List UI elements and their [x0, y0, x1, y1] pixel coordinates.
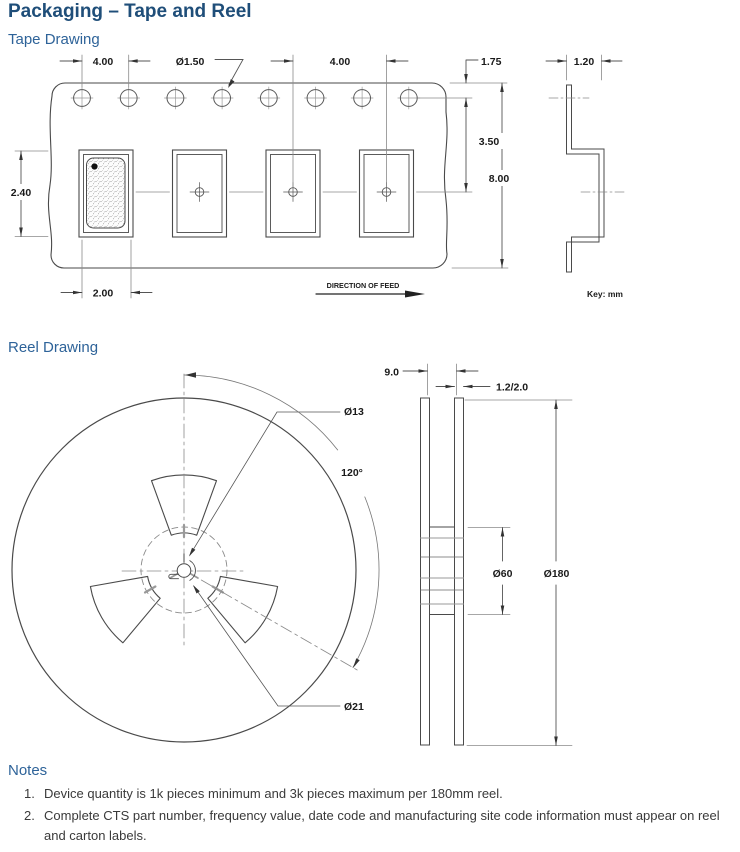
reel-drawing-heading: Reel Drawing — [8, 339, 98, 356]
dim-hole-pitch: 4.00 — [93, 56, 114, 68]
notes-heading: Notes — [8, 762, 47, 779]
width-ext-lines — [428, 364, 457, 395]
dim-edge-to-hole: 1.75 — [481, 56, 502, 68]
datasheet-page: 4.00 Ø1.50 4.00 1.75 3.50 8.00 2.40 2.00… — [0, 0, 740, 852]
key-mm-label: Key: mm — [587, 289, 623, 299]
dim-hole-to-pocket: 3.50 — [479, 136, 500, 148]
dim-arbor-hole: Ø13 — [344, 406, 364, 418]
reel-side-view: 9.0 1.2/2.0 Ø60 Ø180 — [384, 364, 573, 746]
page-title: Packaging – Tape and Reel — [8, 1, 252, 23]
tape-section-view: 1.20 — [546, 55, 626, 272]
reel-drawing: Ø13 120° Ø21 9.0 1.2/2 — [12, 364, 573, 746]
dim-pocket-width: 2.00 — [93, 288, 114, 300]
direction-of-feed-arrow — [405, 291, 425, 298]
reel-flanges — [421, 398, 464, 745]
dim-keyway: Ø21 — [344, 701, 364, 713]
dim-inner-width: 9.0 — [384, 367, 399, 379]
dim-window-angle: 120° — [341, 467, 363, 479]
note-item-1: 1. Device quantity is 1k pieces minimum … — [24, 784, 734, 804]
direction-of-feed-label: DIRECTION OF FEED — [327, 281, 400, 290]
dim-tape-width: 8.00 — [489, 173, 510, 185]
dim-section-width: 1.20 — [574, 56, 595, 68]
tape-drawing-heading: Tape Drawing — [8, 31, 100, 48]
note-number: 2. — [24, 806, 44, 846]
dim-flange-thickness: 1.2/2.0 — [496, 382, 528, 394]
dim-hole-diameter: Ø1.50 — [176, 56, 205, 68]
note-text: Complete CTS part number, frequency valu… — [44, 806, 734, 846]
section-centerlines — [549, 98, 626, 192]
notes-list: 1. Device quantity is 1k pieces minimum … — [24, 784, 734, 848]
reel-front-view: Ø13 120° Ø21 — [12, 372, 379, 742]
dim-hub-diameter: Ø60 — [493, 568, 513, 580]
tape-section-profile — [567, 85, 605, 272]
note-number: 1. — [24, 784, 44, 804]
tape-drawing: 4.00 Ø1.50 4.00 1.75 3.50 8.00 2.40 2.00… — [6, 55, 626, 300]
arbor-hole — [177, 564, 191, 578]
note-text: Device quantity is 1k pieces minimum and… — [44, 784, 734, 804]
pin1-dot — [91, 163, 97, 169]
dim-reel-diameter: Ø180 — [544, 568, 570, 580]
technical-drawings: 4.00 Ø1.50 4.00 1.75 3.50 8.00 2.40 2.00… — [0, 0, 740, 852]
dim-pocket-pitch: 4.00 — [330, 56, 351, 68]
dim-pocket-length: 2.40 — [11, 187, 32, 199]
note-item-2: 2. Complete CTS part number, frequency v… — [24, 806, 734, 846]
